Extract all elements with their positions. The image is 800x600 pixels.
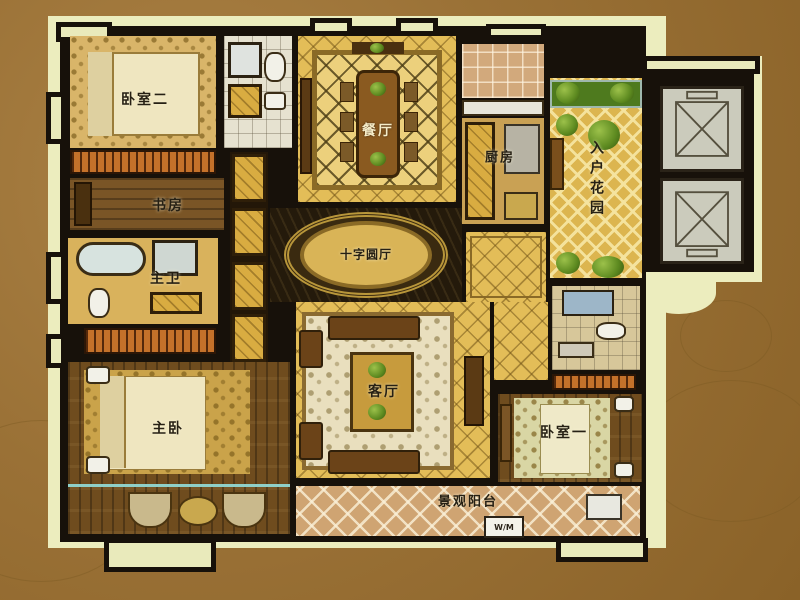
plant-icon <box>556 82 580 104</box>
elevator-icon <box>663 89 741 169</box>
toilet-icon <box>88 288 110 318</box>
plant-icon <box>370 82 386 96</box>
chair-icon <box>340 112 354 132</box>
bay-window <box>486 24 546 40</box>
room-study <box>70 178 224 230</box>
elevator-shaft <box>660 178 744 264</box>
label-entry-garden: 入户花园 <box>586 140 606 220</box>
label-kitchen: 厨房 <box>485 147 515 166</box>
cabinet-icon <box>232 154 266 202</box>
shower-icon <box>228 42 262 78</box>
bay-window <box>46 334 66 368</box>
label-master-bath: 主卫 <box>150 268 182 288</box>
nightstand-icon <box>86 456 110 474</box>
foyer-mat-border <box>470 236 542 298</box>
chair-icon <box>404 142 418 162</box>
nightstand-icon <box>614 462 634 478</box>
service-balcony <box>462 44 544 98</box>
label-balcony: 景观阳台 <box>438 491 498 510</box>
label-living: 客厅 <box>368 381 400 401</box>
sideboard-icon <box>300 78 312 174</box>
plant-icon <box>592 256 624 278</box>
bathtub-icon <box>76 242 146 276</box>
vanity-icon <box>150 292 202 314</box>
bay-window <box>46 92 66 144</box>
wardrobe-icon <box>500 404 512 462</box>
cabinet-icon <box>232 262 266 310</box>
label-study: 书房 <box>152 195 184 215</box>
bay-window <box>642 56 760 74</box>
sofa-icon <box>328 450 420 474</box>
nightstand-icon <box>614 396 634 412</box>
nightstand-icon <box>86 366 110 384</box>
wardrobe-west <box>84 328 216 354</box>
bay-window <box>104 538 216 572</box>
planter-box <box>550 138 564 190</box>
chair-icon <box>222 492 266 528</box>
bay-window <box>310 18 352 36</box>
bay-window <box>396 18 438 36</box>
armchair-icon <box>299 422 323 460</box>
sink-icon <box>264 92 286 110</box>
plant-icon <box>368 404 386 420</box>
toilet-icon <box>264 52 286 82</box>
table-icon <box>178 496 218 526</box>
elevator-icon <box>663 181 741 261</box>
label-bedroom1: 卧室一 <box>540 422 588 442</box>
toilet-icon <box>596 322 626 340</box>
cabinet-icon <box>232 314 266 362</box>
label-bedroom2: 卧室二 <box>121 89 169 109</box>
label-dining: 餐厅 <box>362 120 394 140</box>
cabinet-icon <box>228 84 262 118</box>
kitchen-counter <box>465 122 495 220</box>
bay-window <box>46 252 66 304</box>
bay-window <box>556 538 648 562</box>
desk-icon <box>74 182 92 226</box>
chair-icon <box>128 492 172 528</box>
fridge-icon <box>504 192 538 220</box>
label-cross-hall: 十字圆厅 <box>340 246 392 263</box>
plan-outline-round <box>642 272 716 314</box>
chair-icon <box>340 142 354 162</box>
chair-icon <box>340 82 354 102</box>
cabinet-icon <box>232 208 266 256</box>
chair-icon <box>404 82 418 102</box>
pillows-bedroom2 <box>88 52 114 136</box>
plant-icon <box>610 83 634 103</box>
wardrobe-east <box>552 374 636 390</box>
chair-icon <box>404 112 418 132</box>
wardrobe-north <box>70 150 216 174</box>
floor-plan-canvas: W/M 卧室二 书房 主卫 主卧 餐厅 厨房 入户花园 十字圆厅 客厅 卧室一 … <box>0 0 800 600</box>
tv-cabinet-icon <box>464 356 484 426</box>
label-master-bedroom: 主卧 <box>152 418 184 438</box>
plant-icon <box>370 152 386 166</box>
balcony-window <box>586 494 622 520</box>
sink-icon <box>558 342 594 358</box>
pillows-master <box>100 376 126 468</box>
plant-icon <box>556 114 578 136</box>
hallway-bedroom1 <box>494 302 548 380</box>
plant-icon <box>368 362 386 378</box>
armchair-icon <box>299 330 323 368</box>
sofa-icon <box>328 316 420 340</box>
elevator-shaft <box>660 86 744 172</box>
washing-machine-icon: W/M <box>484 516 524 538</box>
shower-icon <box>562 290 614 316</box>
counter-sink-icon <box>462 100 544 116</box>
plant-icon <box>556 252 580 274</box>
plant-icon <box>370 43 384 53</box>
